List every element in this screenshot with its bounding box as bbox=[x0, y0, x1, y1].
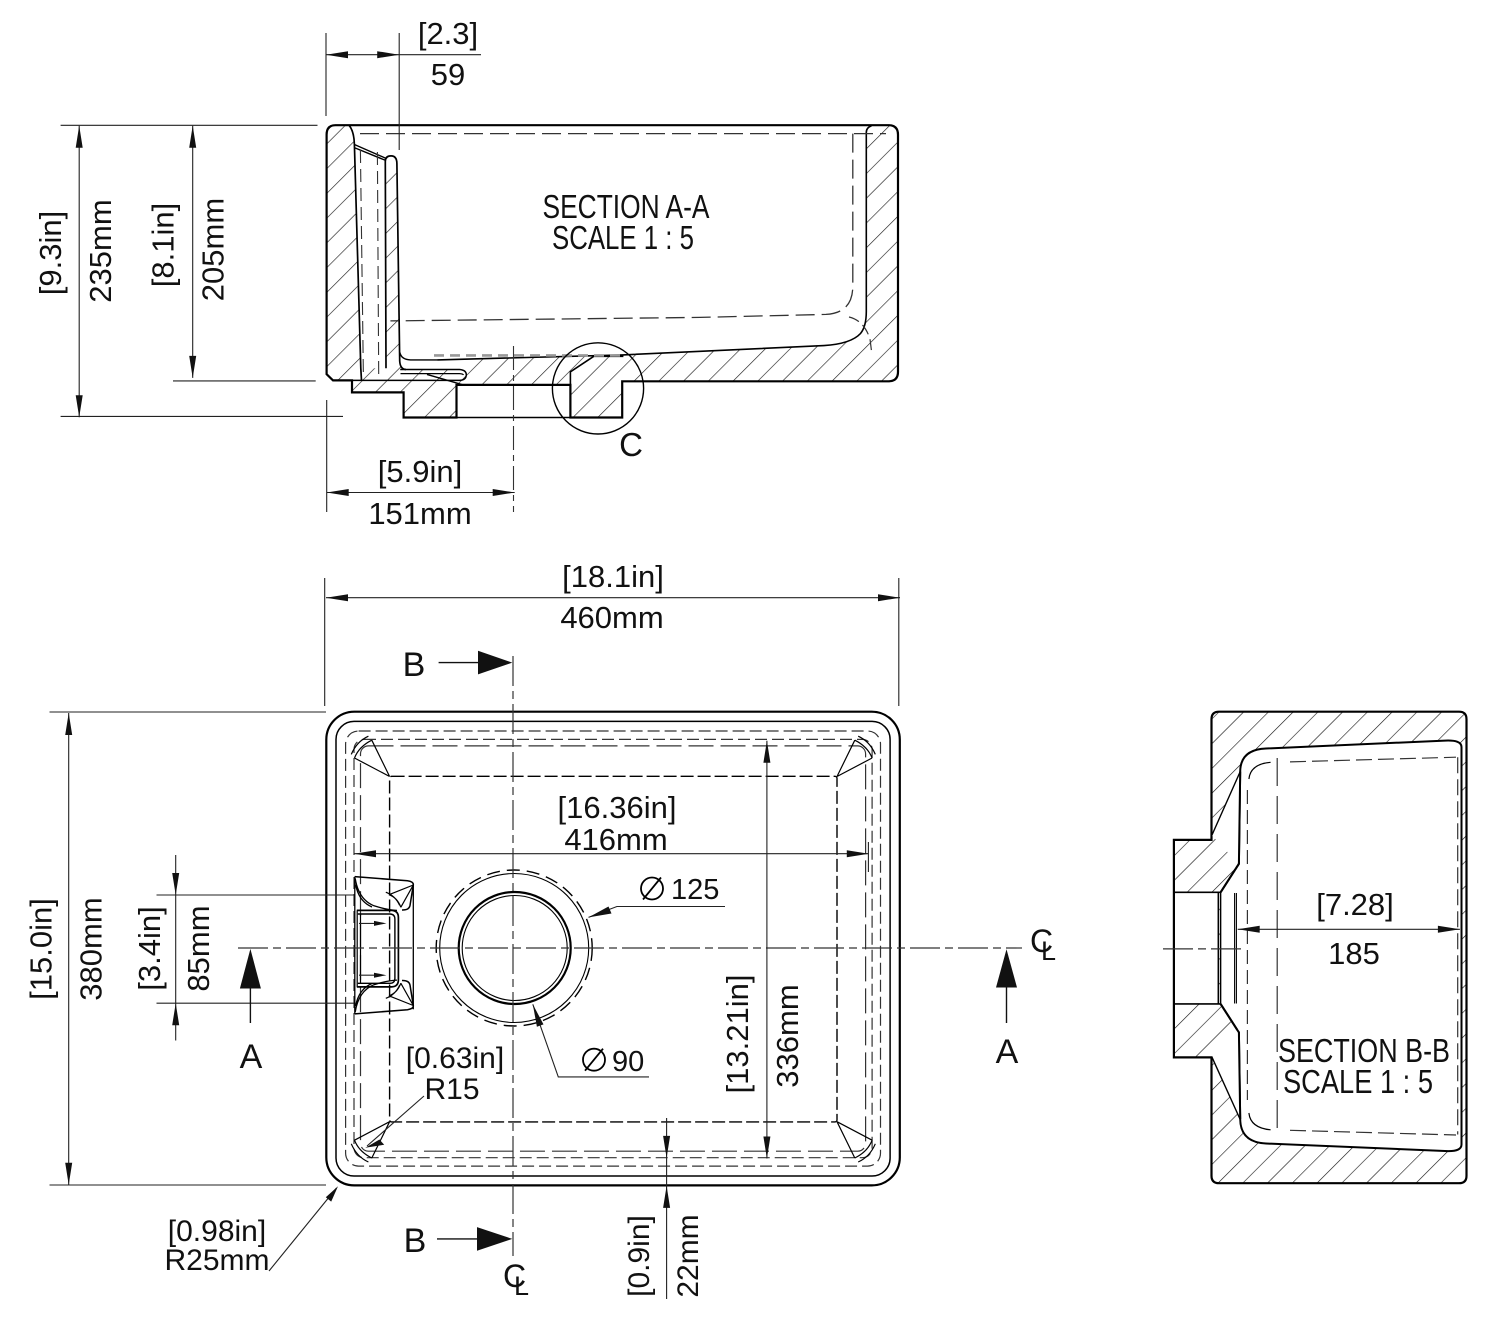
svg-text:[9.3in]: [9.3in] bbox=[33, 211, 68, 295]
svg-text:[8.1in]: [8.1in] bbox=[146, 203, 181, 287]
svg-text:[2.3]: [2.3] bbox=[418, 16, 478, 51]
svg-text:380mm: 380mm bbox=[74, 897, 109, 1000]
svg-text:B: B bbox=[403, 646, 426, 684]
svg-text:B: B bbox=[404, 1222, 427, 1260]
svg-text:SCALE 1 : 5: SCALE 1 : 5 bbox=[552, 219, 694, 256]
svg-text:R15: R15 bbox=[424, 1073, 479, 1106]
svg-text:[16.36in]: [16.36in] bbox=[558, 790, 677, 825]
svg-text:A: A bbox=[240, 1038, 263, 1076]
svg-text:235mm: 235mm bbox=[83, 199, 118, 302]
svg-text:151mm: 151mm bbox=[368, 496, 471, 531]
svg-text:336mm: 336mm bbox=[770, 984, 805, 1087]
svg-text:85mm: 85mm bbox=[181, 905, 216, 991]
svg-text:[0.9in]: [0.9in] bbox=[623, 1215, 656, 1297]
svg-text:C: C bbox=[619, 426, 643, 463]
svg-text:SCALE 1 : 5: SCALE 1 : 5 bbox=[1283, 1063, 1433, 1100]
svg-text:[15.0in]: [15.0in] bbox=[24, 898, 59, 1000]
svg-text:[0.63in]: [0.63in] bbox=[406, 1042, 504, 1075]
svg-text:L: L bbox=[514, 1271, 529, 1301]
svg-text:R25mm: R25mm bbox=[164, 1244, 269, 1277]
svg-text:[13.21in]: [13.21in] bbox=[720, 975, 755, 1094]
svg-text:[3.4in]: [3.4in] bbox=[132, 906, 167, 990]
svg-text:185: 185 bbox=[1328, 936, 1380, 971]
svg-text:[5.9in]: [5.9in] bbox=[378, 454, 462, 489]
svg-text:22mm: 22mm bbox=[672, 1214, 705, 1297]
svg-text:[7.28]: [7.28] bbox=[1316, 887, 1394, 922]
svg-text:460mm: 460mm bbox=[560, 600, 663, 635]
svg-text:205mm: 205mm bbox=[196, 198, 231, 301]
svg-text:59: 59 bbox=[431, 57, 465, 92]
svg-text:A: A bbox=[996, 1033, 1019, 1071]
svg-text:90: 90 bbox=[612, 1046, 644, 1078]
svg-text:416mm: 416mm bbox=[564, 822, 667, 857]
svg-text:125: 125 bbox=[671, 874, 719, 906]
svg-text:L: L bbox=[1041, 936, 1056, 966]
svg-text:[18.1in]: [18.1in] bbox=[562, 559, 664, 594]
